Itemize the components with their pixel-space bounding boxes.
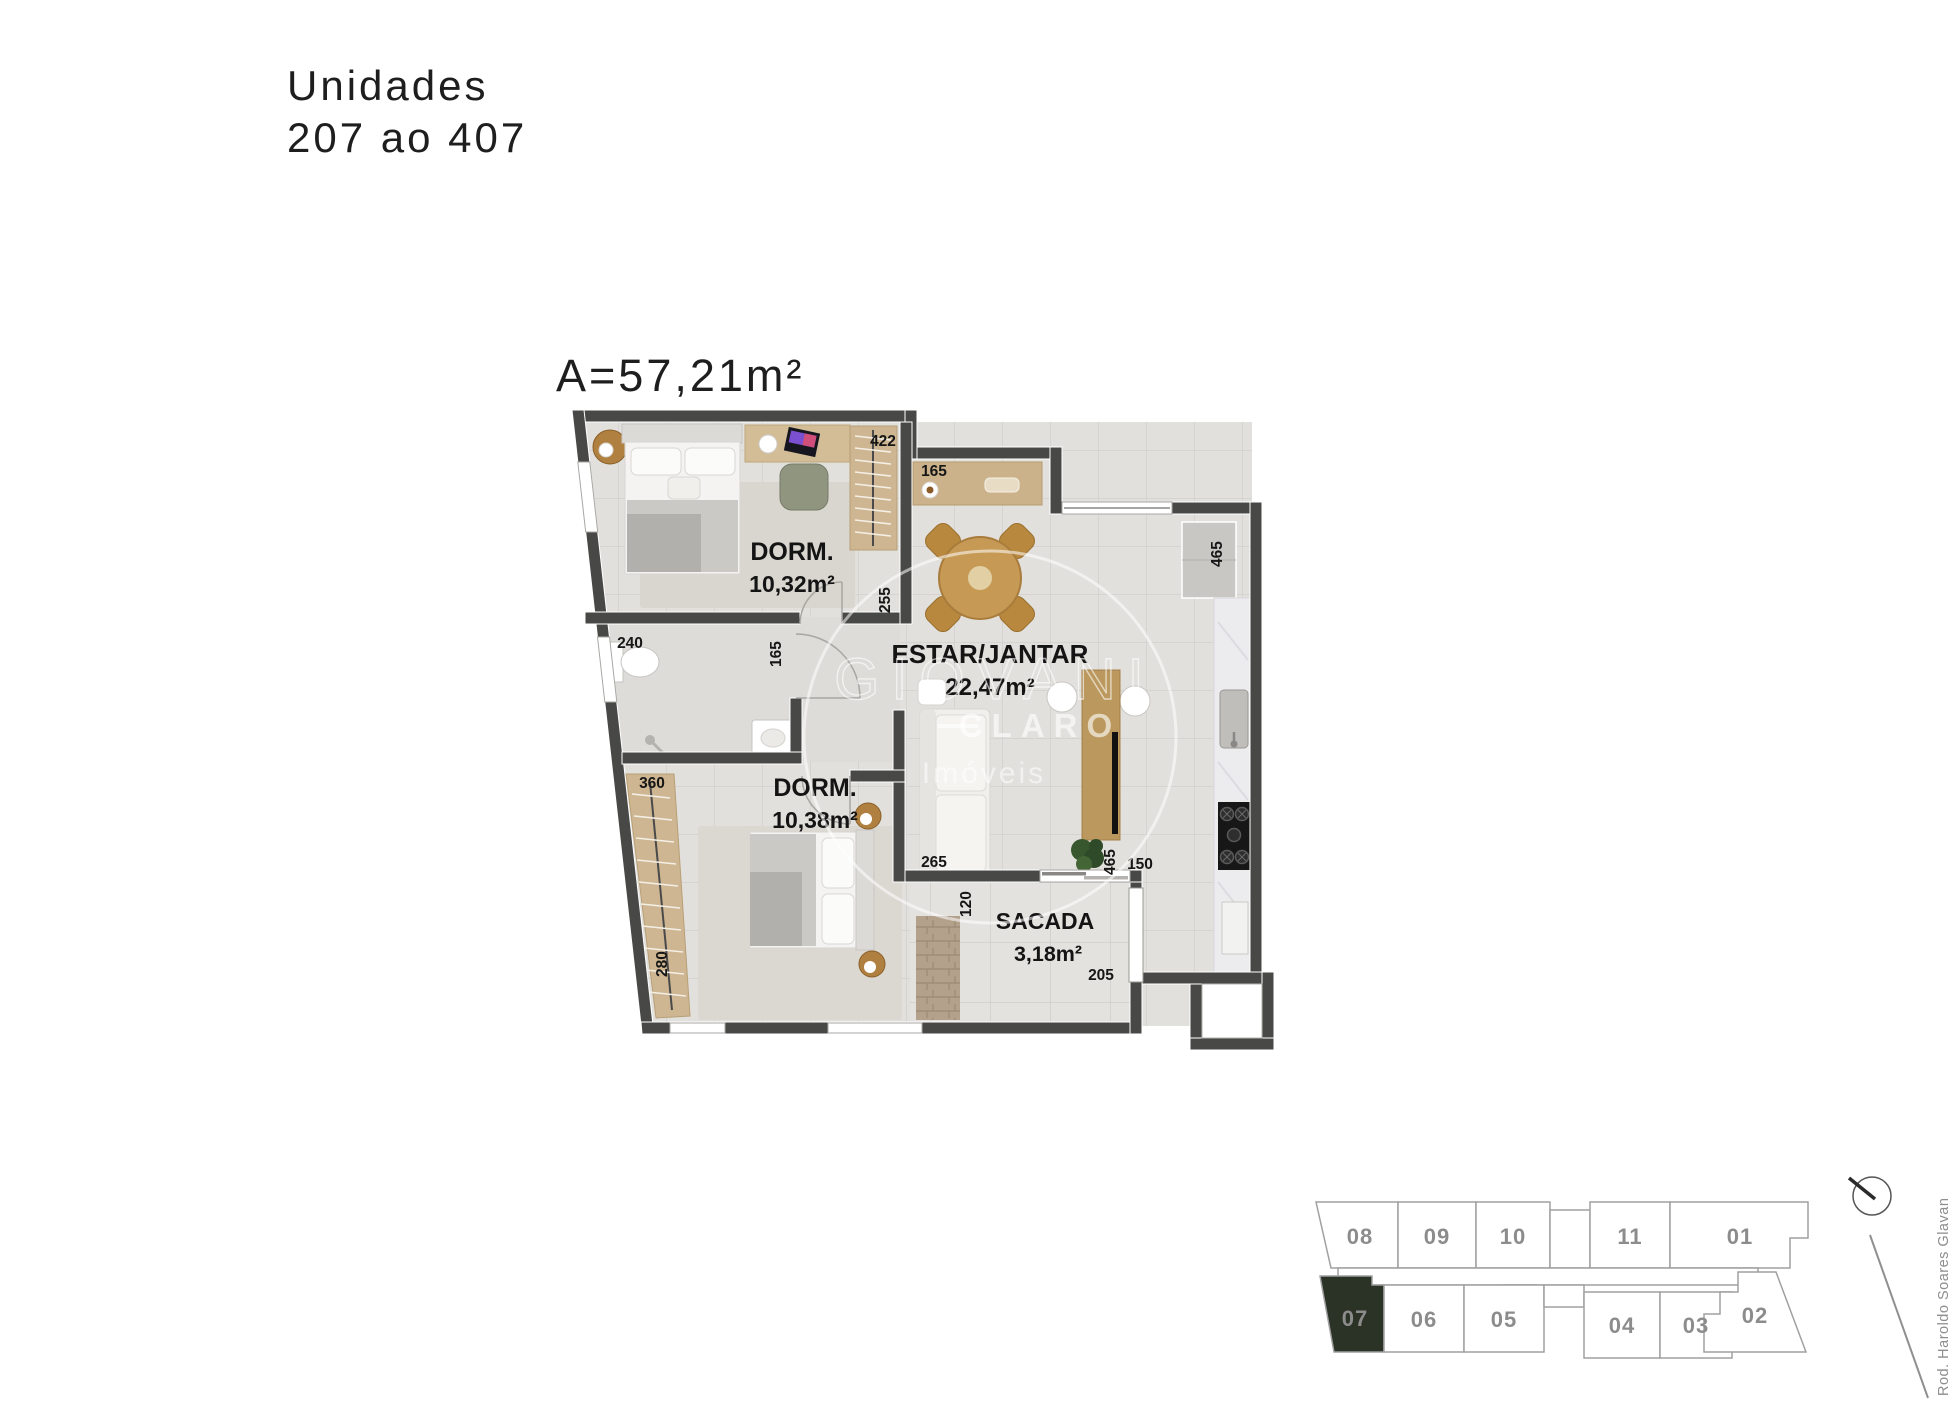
dorm1-area: 10,32m² [749, 571, 835, 597]
unit-08-label: 08 [1347, 1224, 1373, 1249]
dim-sacada-bottom: 205 [1088, 967, 1114, 984]
unit-03-label: 03 [1683, 1313, 1709, 1338]
dim-bath-door: 165 [768, 641, 785, 667]
throw-blanket [750, 872, 802, 946]
dim-sideboard: 165 [921, 463, 947, 480]
dim-wardrobe2-top: 360 [639, 775, 665, 792]
watermark-line2: CLARO [959, 707, 1121, 744]
small-pillow [668, 477, 700, 499]
unit-11-label: 11 [1617, 1224, 1642, 1249]
wall-dorm2-top [850, 770, 905, 782]
pillow [685, 448, 735, 475]
dorm1-name: DORM. [750, 538, 833, 566]
bed-headboard [856, 830, 874, 950]
pillow [822, 894, 854, 944]
corridor-gap-cell [1550, 1210, 1590, 1268]
key-plan-svg: 08 09 10 11 01 07 06 05 04 03 02 Rod. Ha… [1300, 1140, 1960, 1400]
sacada-window-box [1129, 888, 1143, 982]
title-line2: 207 ao 407 [287, 112, 527, 164]
slider-panel [1084, 876, 1128, 880]
floor-plan: DORM. 10,32m² DORM. 10,38m² ESTAR/JANTAR… [570, 402, 1292, 1050]
unit-07-label: 07 [1342, 1306, 1368, 1331]
lamp [599, 443, 613, 457]
slider-panel [1042, 872, 1086, 876]
unit-02-label: 02 [1742, 1303, 1768, 1328]
lamp [864, 961, 876, 973]
vase [759, 435, 777, 453]
tv [1112, 732, 1118, 834]
dim-bath-top: 240 [617, 635, 643, 652]
throw-blanket [627, 514, 701, 572]
title-line1: Unidades [287, 60, 527, 112]
stove [1218, 802, 1250, 870]
street-label: Rod. Haroldo Soares Glavan [1936, 1198, 1952, 1396]
bed-headboard [622, 424, 742, 443]
dim-sofa-bottom: 265 [921, 854, 947, 871]
compass-icon [1849, 1177, 1891, 1215]
sacada-brick-patch [916, 916, 960, 1020]
dim-fridge: 465 [1209, 541, 1226, 567]
unit-area-label: A=57,21m² [556, 350, 804, 402]
wall-bath-bottom [622, 752, 802, 764]
unit-01-label: 01 [1727, 1224, 1753, 1249]
corridor [1338, 1268, 1758, 1285]
wall-corner-left [1190, 984, 1202, 1038]
wall-kitchen-top [1172, 502, 1262, 514]
sacada-area: 3,18m² [1014, 942, 1082, 966]
unit-04-label: 04 [1609, 1313, 1635, 1338]
decor-bowl-center [927, 487, 934, 494]
wall-right [1250, 502, 1262, 984]
dim-sacada-left: 120 [958, 891, 975, 917]
dim-wardrobe2-side: 280 [654, 951, 671, 977]
page-title: Unidades 207 ao 407 [287, 60, 527, 164]
dim-wardrobe1: 422 [870, 433, 896, 450]
dorm2-area: 10,38m² [772, 807, 858, 833]
wall-dorm1-bottom [585, 612, 800, 624]
watermark-line1: GIOVANI [834, 647, 1155, 712]
unit-09-label: 09 [1424, 1224, 1450, 1249]
lamp [860, 813, 872, 825]
wall-living-sofa [893, 710, 905, 882]
dim-living-left: 255 [877, 587, 894, 613]
wall-dorm1-right [900, 422, 912, 624]
wall-living-top [917, 447, 1062, 459]
watermark-line3: Imóveis [922, 757, 1046, 790]
table-center [968, 566, 992, 590]
wall-kitchen-bottom [1130, 972, 1274, 984]
wall-sacada-top [905, 870, 1050, 882]
dorm2-window-left [670, 1023, 725, 1033]
wall-step-entry [1050, 447, 1062, 514]
unit-10-label: 10 [1500, 1224, 1526, 1249]
corridor-stub [1544, 1285, 1584, 1307]
dining-set [922, 520, 1038, 635]
unit-06-label: 06 [1411, 1307, 1437, 1332]
chair [780, 464, 828, 510]
tray [985, 478, 1019, 492]
pillow [631, 448, 681, 475]
road-line [1870, 1235, 1928, 1398]
dim-tv-bar: 465 [1102, 849, 1119, 875]
corner-window-box [1202, 984, 1262, 1038]
key-plan: 08 09 10 11 01 07 06 05 04 03 02 Rod. Ha… [1300, 1140, 1960, 1400]
unit-05-label: 05 [1491, 1307, 1517, 1332]
floor-plan-svg: DORM. 10,32m² DORM. 10,38m² ESTAR/JANTAR… [570, 402, 1292, 1050]
appliance [1222, 902, 1248, 954]
wall-top [572, 410, 917, 422]
sink-basin [761, 729, 785, 747]
dorm2-window-right [828, 1023, 922, 1033]
wall-corner-bottom [1190, 1038, 1274, 1050]
